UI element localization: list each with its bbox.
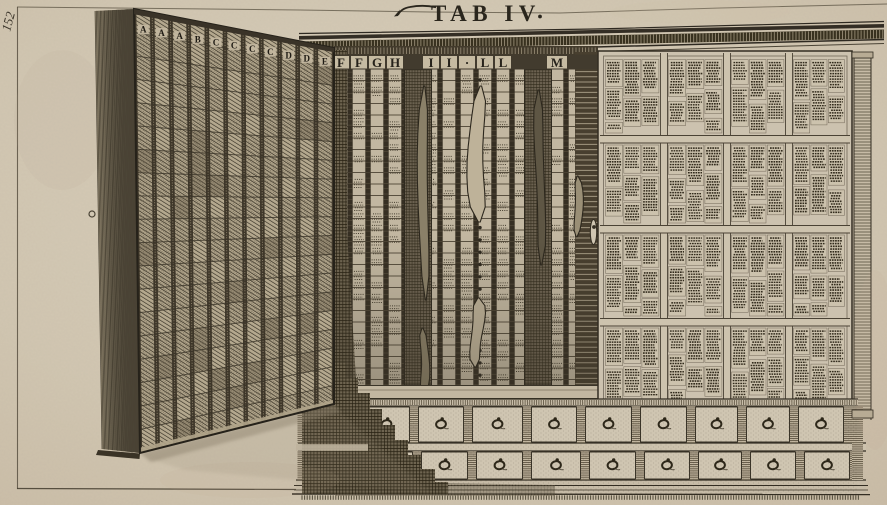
svg-text:A: A (176, 31, 183, 41)
svg-text:D: D (285, 50, 292, 60)
svg-text:A: A (158, 28, 165, 38)
svg-text:C: C (249, 44, 256, 54)
svg-text:B: B (195, 34, 201, 44)
svg-text:D: D (304, 54, 311, 64)
svg-text:TAB IV: TAB IV (431, 1, 541, 26)
svg-text:C: C (231, 41, 238, 51)
svg-text:E: E (322, 57, 328, 67)
svg-text:A: A (140, 25, 147, 35)
svg-text:C: C (213, 38, 220, 48)
svg-text:C: C (267, 47, 274, 57)
